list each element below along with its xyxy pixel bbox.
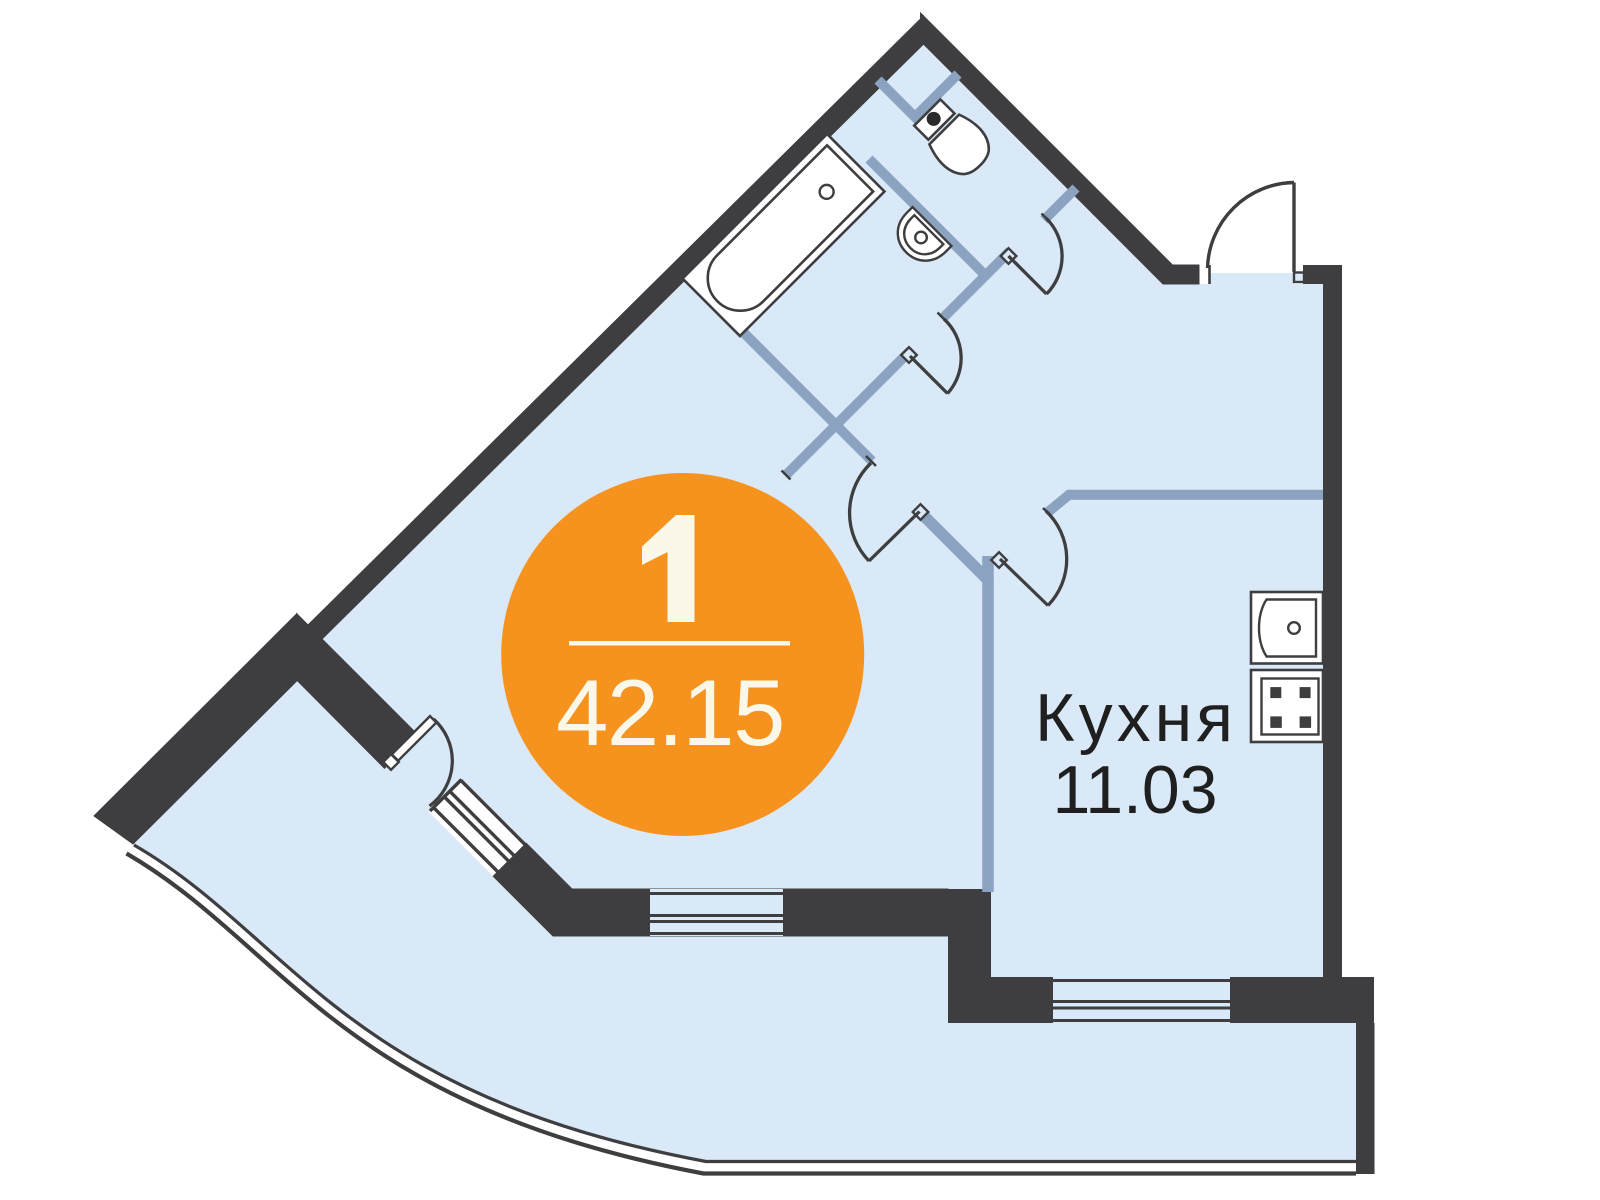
svg-text:42.15: 42.15 [556,660,784,765]
svg-text:11.03: 11.03 [1052,752,1217,828]
svg-text:Кухня: Кухня [1035,680,1237,756]
